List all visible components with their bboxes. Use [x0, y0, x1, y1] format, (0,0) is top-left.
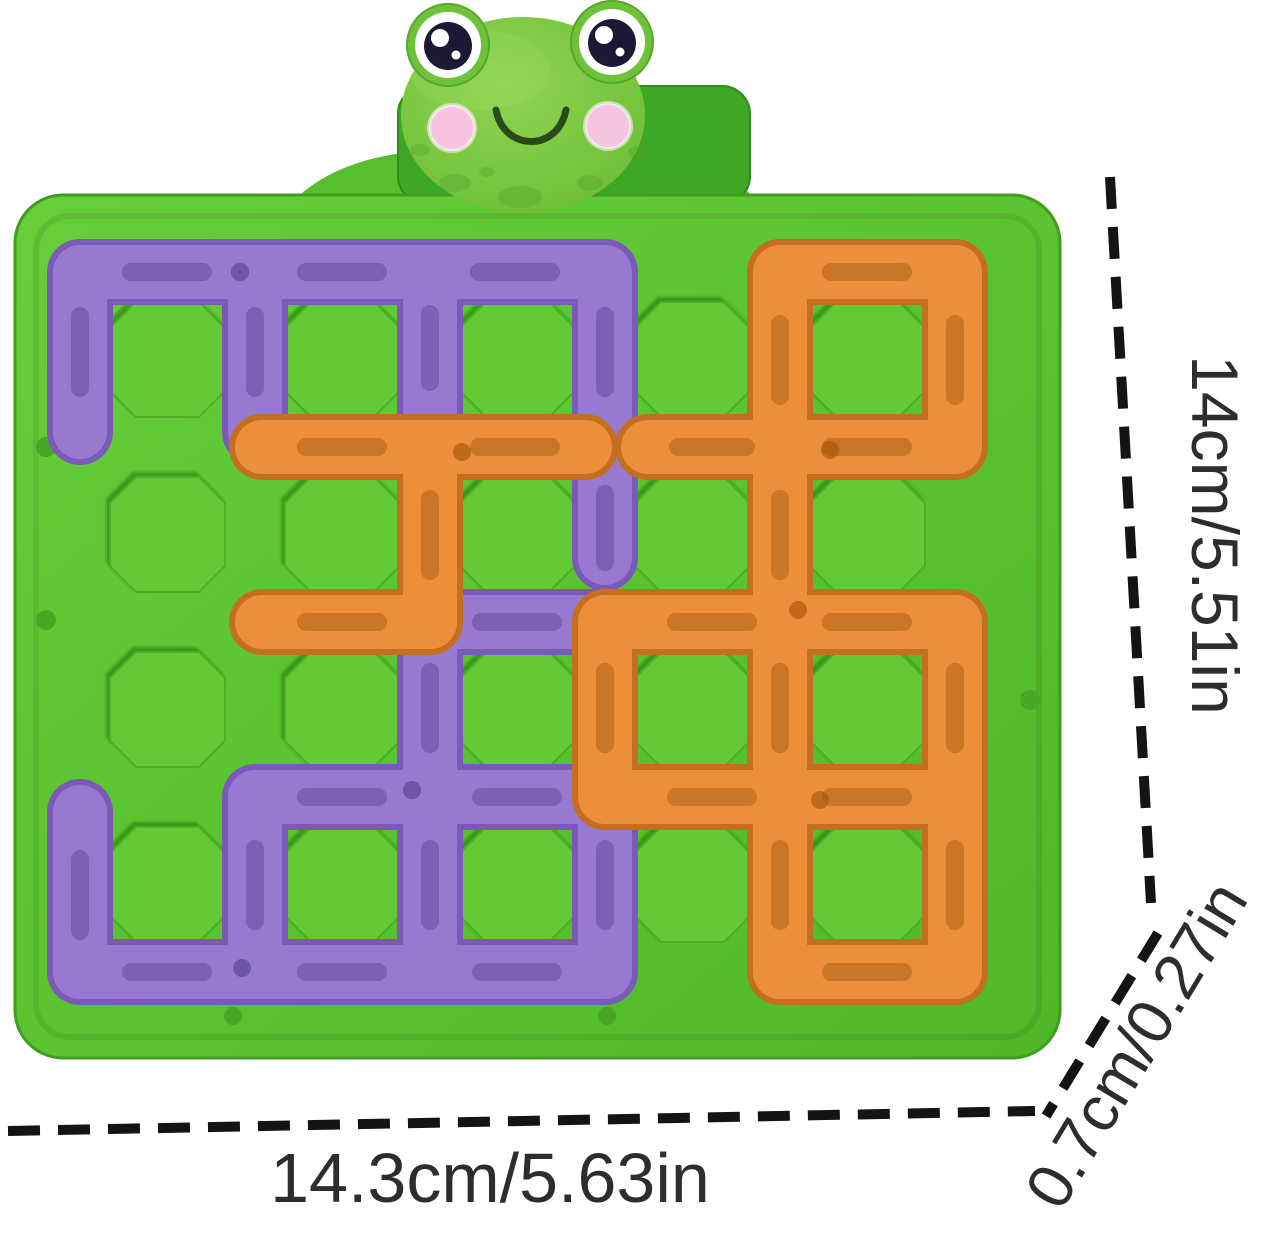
board-cell [635, 302, 750, 417]
board-cell [810, 477, 925, 592]
height-dimension-label: 14cm/5.51in [1178, 355, 1252, 715]
board-cell [110, 652, 225, 767]
board-cell [635, 827, 750, 942]
board-nub [224, 1007, 242, 1025]
board-cell [635, 477, 750, 592]
board-cell [460, 652, 575, 767]
width-dimension-line [8, 1111, 1035, 1131]
board-cell [460, 302, 575, 417]
board-cell [635, 652, 750, 767]
frog-right-cheek [585, 103, 631, 149]
frog-left-eye [407, 4, 489, 86]
product-image: 14.3cm/5.63in 14cm/5.51in 0.7cm/0.27in [0, 0, 1273, 1252]
board-cell [460, 827, 575, 942]
puzzle-board [15, 86, 1060, 1058]
board-cell [285, 827, 400, 942]
board-cell [285, 477, 400, 592]
frog-left-cheek [429, 105, 475, 151]
board-cell [110, 827, 225, 942]
board-cell [285, 302, 400, 417]
board-nub [36, 610, 56, 630]
board-cell [110, 477, 225, 592]
width-dimension-label: 14.3cm/5.63in [270, 1139, 710, 1217]
board-nub [1020, 690, 1040, 710]
board-cell [460, 477, 575, 592]
board-cell [810, 302, 925, 417]
height-dimension-line [1110, 177, 1151, 903]
board-cell [110, 302, 225, 417]
board-cell [810, 827, 925, 942]
board-cell [285, 652, 400, 767]
board-cell [810, 652, 925, 767]
board-nub [598, 1007, 616, 1025]
frog-right-eye [571, 1, 653, 83]
